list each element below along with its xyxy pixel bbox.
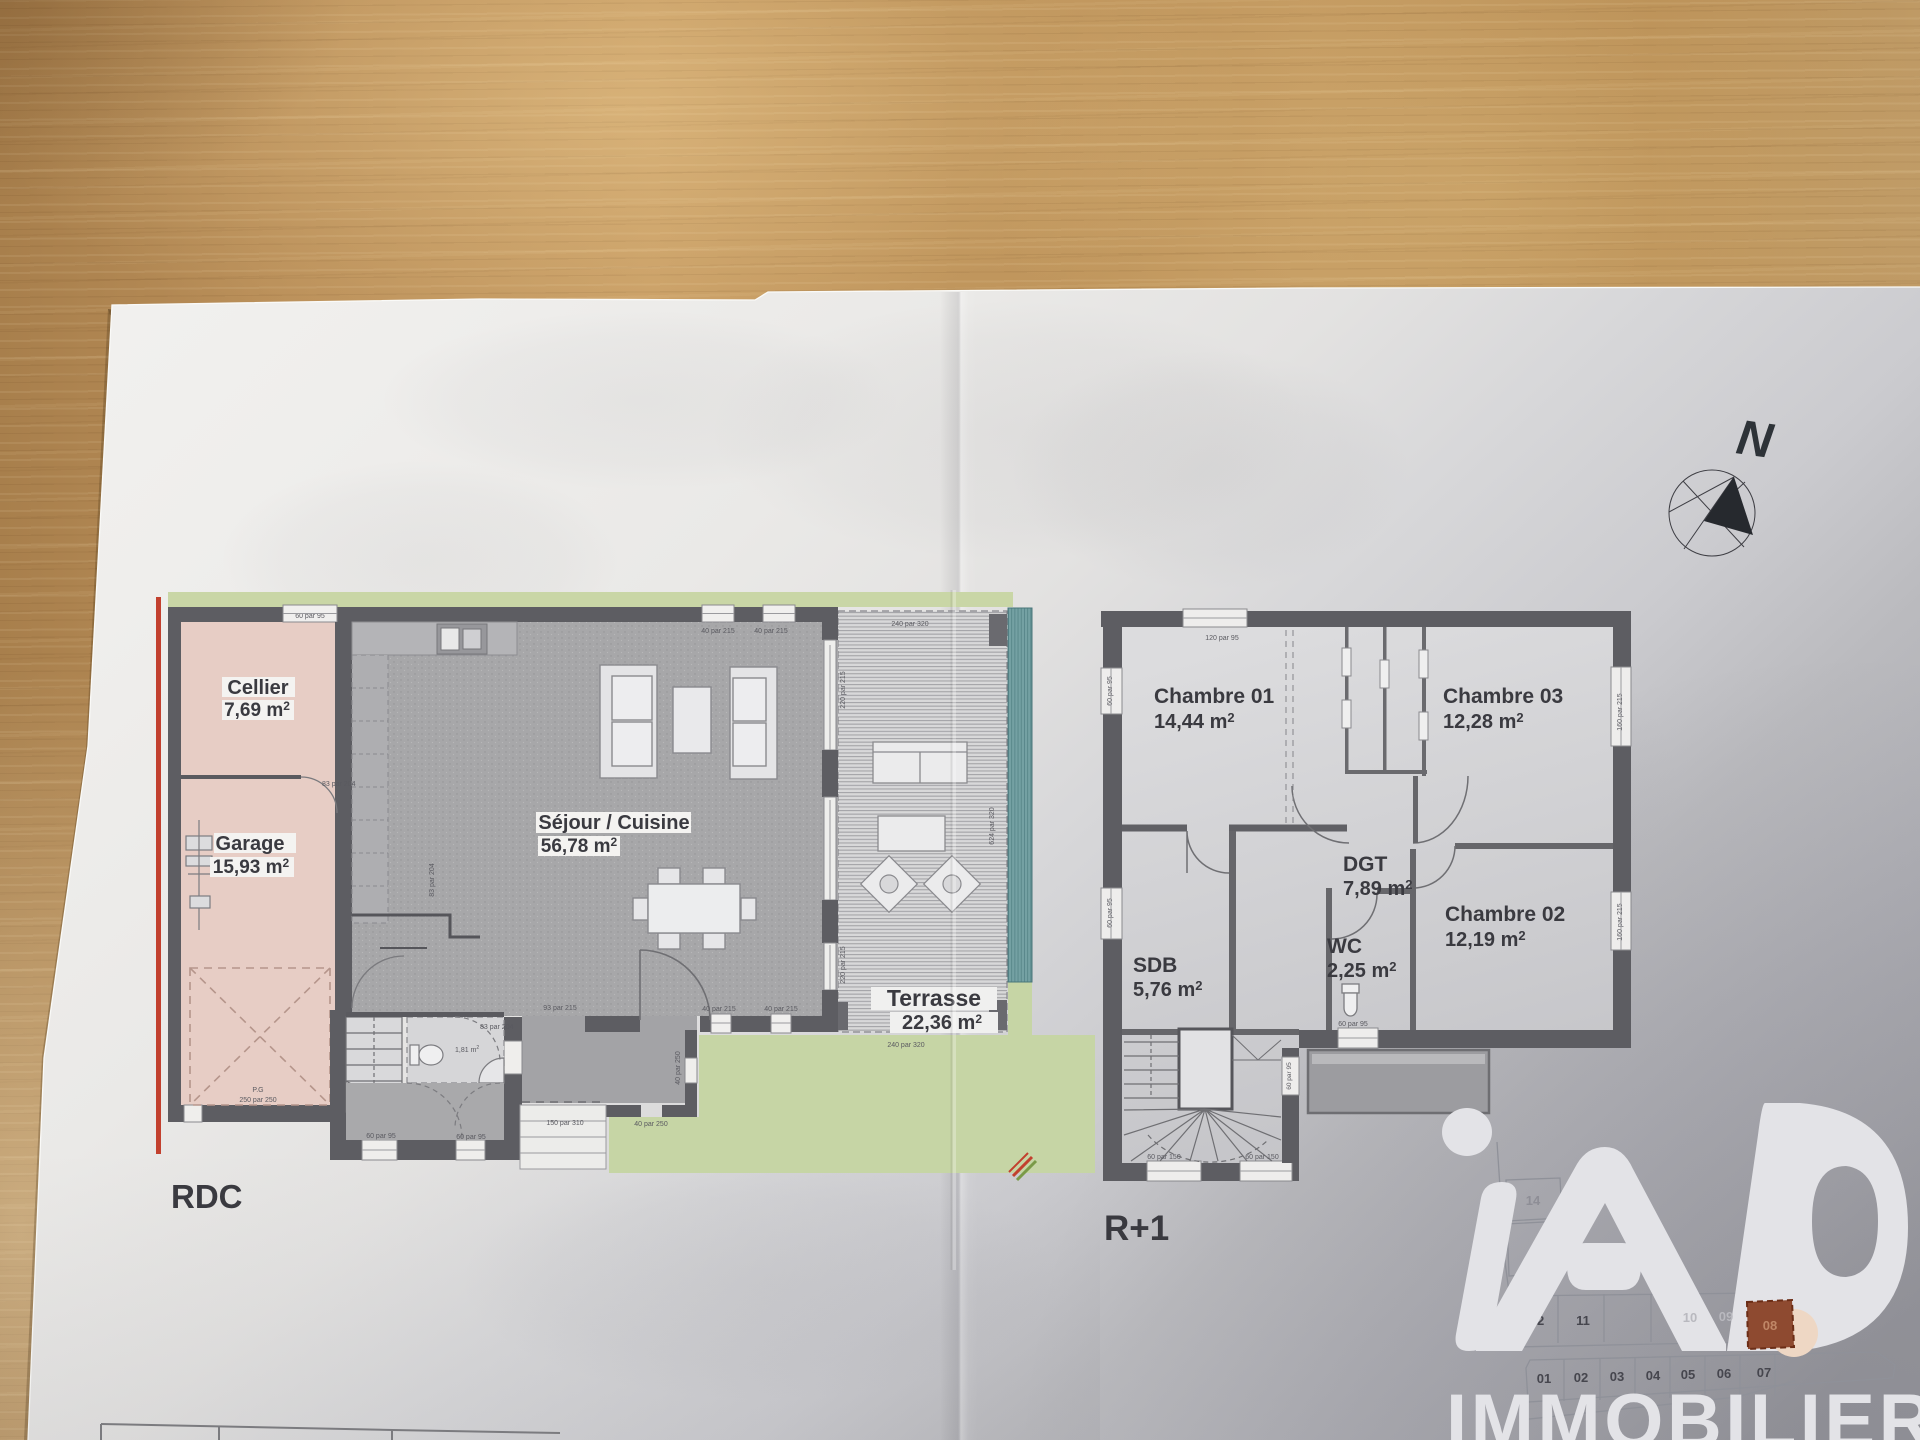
svg-text:250 par 250: 250 par 250 <box>239 1097 276 1104</box>
svg-text:150 par 310: 150 par 310 <box>546 1120 583 1127</box>
svg-text:Chambre 01: Chambre 01 <box>1154 685 1275 708</box>
svg-text:Terrasse: Terrasse <box>887 985 981 1011</box>
svg-text:Séjour / Cuisine: Séjour / Cuisine <box>538 812 689 834</box>
svg-text:Cellier: Cellier <box>227 677 288 699</box>
svg-text:240 par 320: 240 par 320 <box>891 621 928 628</box>
svg-text:DGT: DGT <box>1343 853 1388 876</box>
svg-text:220 par 215: 220 par 215 <box>840 671 847 708</box>
svg-text:40 par 250: 40 par 250 <box>675 1051 682 1085</box>
svg-text:7,89 m2: 7,89 m2 <box>1343 877 1413 900</box>
svg-text:14,44 m2: 14,44 m2 <box>1154 710 1235 733</box>
svg-text:SDB: SDB <box>1133 954 1177 977</box>
svg-text:60 par 95: 60 par 95 <box>1286 1062 1293 1090</box>
svg-text:624 par 320: 624 par 320 <box>989 807 996 844</box>
svg-text:40 par 215: 40 par 215 <box>764 1006 798 1013</box>
svg-text:15,93 m2: 15,93 m2 <box>213 856 290 878</box>
svg-text:10: 10 <box>1683 1310 1697 1325</box>
svg-text:RDC: RDC <box>171 1178 243 1215</box>
svg-text:Chambre 02: Chambre 02 <box>1445 903 1565 926</box>
svg-text:60 par 95: 60 par 95 <box>456 1134 486 1141</box>
svg-text:2,25 m2: 2,25 m2 <box>1327 959 1397 982</box>
svg-text:220 par 215: 220 par 215 <box>840 946 847 983</box>
svg-text:R+1: R+1 <box>1104 1209 1169 1248</box>
svg-text:40 par 215: 40 par 215 <box>701 628 735 635</box>
svg-text:93 par 215: 93 par 215 <box>543 1005 577 1012</box>
svg-text:40 par 215: 40 par 215 <box>702 1006 736 1013</box>
svg-text:83 par 204: 83 par 204 <box>429 863 436 897</box>
svg-text:Chambre 03: Chambre 03 <box>1443 685 1563 708</box>
svg-text:22,36 m2: 22,36 m2 <box>902 1012 982 1034</box>
svg-text:P.G: P.G <box>252 1087 263 1094</box>
svg-text:09: 09 <box>1719 1309 1733 1324</box>
svg-text:WC: WC <box>1327 935 1362 958</box>
svg-text:08: 08 <box>1763 1318 1777 1333</box>
svg-text:60 par 95: 60 par 95 <box>1338 1021 1368 1028</box>
svg-text:40 par 250: 40 par 250 <box>634 1121 668 1128</box>
svg-text:11: 11 <box>1576 1313 1590 1328</box>
svg-text:07: 07 <box>1757 1365 1771 1380</box>
svg-text:60 par 95: 60 par 95 <box>366 1133 396 1140</box>
svg-text:60 par 150: 60 par 150 <box>1245 1154 1279 1161</box>
svg-text:56,78 m2: 56,78 m2 <box>541 835 618 857</box>
svg-text:83 par 204: 83 par 204 <box>322 781 356 788</box>
svg-text:1,81 m2: 1,81 m2 <box>455 1045 479 1054</box>
svg-text:60 par 150: 60 par 150 <box>1147 1154 1181 1161</box>
svg-text:120 par 95: 120 par 95 <box>1205 635 1239 642</box>
svg-text:5,76 m2: 5,76 m2 <box>1133 978 1203 1001</box>
svg-text:12,19 m2: 12,19 m2 <box>1445 928 1526 951</box>
svg-text:7,69 m2: 7,69 m2 <box>224 699 290 721</box>
svg-text:240 par 320: 240 par 320 <box>887 1042 924 1049</box>
svg-text:IMMOBILIER: IMMOBILIER <box>1446 1379 1920 1440</box>
svg-text:60 par 95: 60 par 95 <box>295 613 325 620</box>
svg-text:Garage: Garage <box>216 833 285 855</box>
svg-text:12,28 m2: 12,28 m2 <box>1443 710 1524 733</box>
svg-text:40 par 215: 40 par 215 <box>754 628 788 635</box>
svg-text:83 par 204: 83 par 204 <box>480 1024 514 1031</box>
svg-text:14: 14 <box>1526 1193 1541 1208</box>
